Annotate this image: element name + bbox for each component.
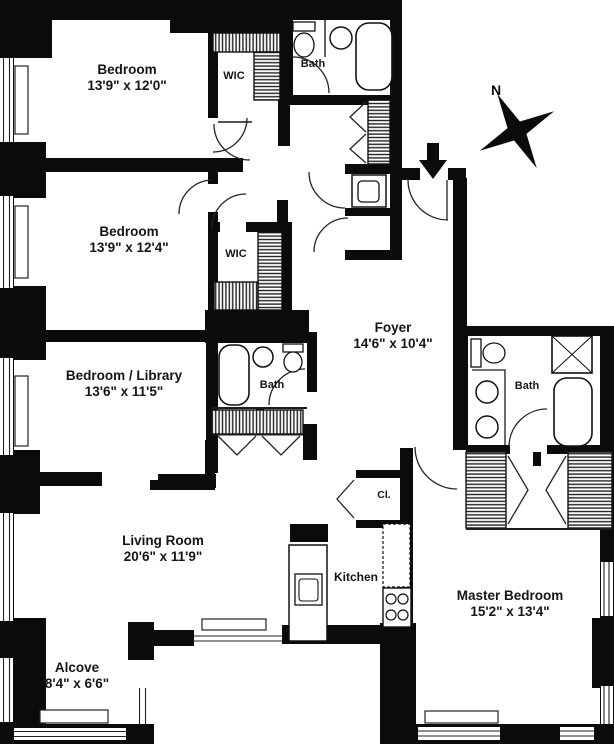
window-seat [40, 710, 108, 723]
sink-icon [476, 381, 498, 403]
compass-north-label: N [491, 82, 501, 98]
kitchen-cabinet [383, 524, 410, 587]
window [194, 632, 282, 646]
door-arc [415, 447, 457, 489]
window [0, 58, 13, 142]
window-seat [15, 376, 28, 446]
stove-burner [386, 610, 396, 620]
bifold-door [262, 436, 300, 455]
bathtub-icon [554, 378, 592, 446]
sink-icon [476, 416, 498, 438]
bifold-door [350, 134, 366, 163]
window [0, 513, 13, 621]
bathtub-icon [219, 345, 249, 405]
bifold-door [218, 436, 256, 455]
bifold-door [337, 480, 354, 518]
window [14, 728, 126, 740]
door-arc [408, 180, 448, 220]
window-seat [15, 206, 28, 278]
window-seat [15, 66, 28, 134]
toilet-icon [294, 33, 314, 57]
bathtub-icon [356, 23, 392, 90]
utility-box-icon [358, 181, 379, 202]
floorplan-svg: N [0, 0, 614, 744]
entry-arrow-icon [419, 143, 447, 179]
sink-icon [330, 27, 352, 49]
window-seat [425, 711, 498, 723]
stove-burner [398, 594, 408, 604]
toilet-icon [284, 352, 302, 372]
toilet-icon [293, 22, 315, 31]
door-arc [314, 218, 348, 252]
window [0, 358, 13, 455]
bifold-door [508, 456, 528, 524]
window [560, 727, 594, 740]
stove-burner [386, 594, 396, 604]
window [418, 727, 500, 740]
toilet-icon [471, 339, 481, 367]
window [601, 686, 613, 724]
stove-icon [383, 588, 411, 627]
stove-burner [398, 610, 408, 620]
window [136, 688, 149, 724]
floorplan: N Bedroom 13'9" x 12'0" WIC Bath Bedroom… [0, 0, 614, 744]
door-arc [269, 369, 305, 405]
door-arc [509, 409, 547, 447]
toilet-icon [483, 343, 505, 363]
kitchen-sink-icon [299, 579, 318, 601]
door-arc [293, 57, 329, 93]
window-seat [202, 619, 266, 630]
bifold-door [546, 456, 566, 524]
window [0, 196, 13, 288]
door-arc [309, 172, 345, 208]
toilet-icon [283, 344, 303, 352]
window [0, 658, 13, 722]
window [601, 562, 613, 616]
bifold-door [350, 102, 366, 132]
door-arc [213, 118, 247, 152]
door-arc [179, 180, 213, 214]
sink-icon [253, 347, 273, 367]
compass-icon: N [460, 74, 574, 188]
